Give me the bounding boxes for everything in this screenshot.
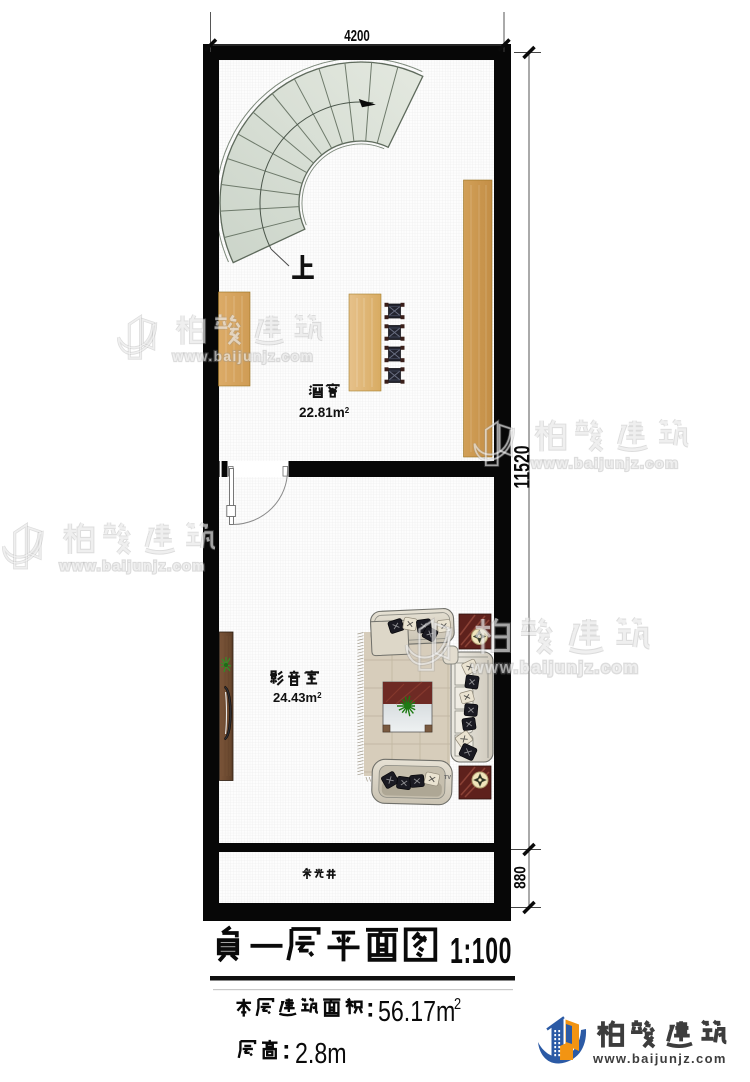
svg-text:www.baijunjz.com: www.baijunjz.com <box>530 456 679 472</box>
svg-text:www.baijunjz.com: www.baijunjz.com <box>172 349 315 364</box>
svg-text:880: 880 <box>511 866 530 889</box>
svg-text:2: 2 <box>454 996 461 1014</box>
svg-text:TV: TV <box>444 775 451 781</box>
svg-text:4200: 4200 <box>344 26 370 44</box>
svg-text:www.baijunjz.com: www.baijunjz.com <box>59 558 207 574</box>
svg-text:24.43m2: 24.43m2 <box>273 690 322 705</box>
svg-text:2.8m: 2.8m <box>295 1036 347 1069</box>
svg-text:22.81m2: 22.81m2 <box>299 405 350 420</box>
svg-text:56.17m: 56.17m <box>378 994 455 1027</box>
svg-text:www.baijunjz.com: www.baijunjz.com <box>470 659 640 677</box>
svg-text:1:100: 1:100 <box>450 932 512 971</box>
svg-text:www.baijunjz.com: www.baijunjz.com <box>592 1051 727 1066</box>
